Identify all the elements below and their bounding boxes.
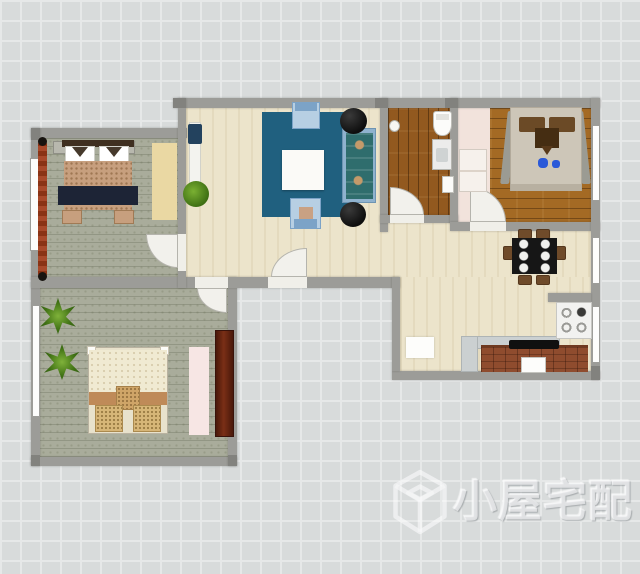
wall-joint <box>173 98 186 108</box>
double-bed-bedroom2[interactable] <box>510 107 582 191</box>
coffee-table[interactable] <box>282 150 324 190</box>
wall-joint <box>228 455 237 466</box>
bedroom1-mat[interactable] <box>152 143 177 220</box>
stove[interactable] <box>556 302 592 339</box>
bed-pillow <box>95 405 123 432</box>
kitchen-counter-side[interactable] <box>461 336 478 372</box>
doorway-vestibule <box>470 222 506 231</box>
window-kitchen-right[interactable] <box>592 306 600 363</box>
bathroom-cabinet[interactable] <box>442 176 454 193</box>
watermark: 小屋宅配 <box>391 460 637 544</box>
plant-pot-bottom[interactable] <box>340 202 366 227</box>
bathroom-vanity[interactable] <box>432 139 452 170</box>
folded-blanket <box>535 128 559 148</box>
ladder-shelf[interactable] <box>38 141 47 277</box>
vestibule-closet[interactable] <box>459 149 487 192</box>
floorplan-canvas: 小屋宅配 <box>0 0 640 574</box>
wall-living-bathroom[interactable] <box>380 98 388 232</box>
window-dining-right[interactable] <box>592 237 600 284</box>
wall-kitchen-bottom[interactable] <box>392 371 600 380</box>
watermark-text: 小屋宅配 <box>453 480 633 524</box>
doorway-bedroom1 <box>178 234 186 271</box>
wall-bedroom3-bottom[interactable] <box>31 457 237 466</box>
tv-unit[interactable] <box>188 124 202 144</box>
bed-blanket <box>58 186 138 205</box>
sofa[interactable] <box>342 128 376 203</box>
kitchen-sink[interactable] <box>521 357 546 373</box>
armchair-bottom[interactable] <box>290 198 321 229</box>
wall-joint <box>445 98 458 108</box>
doorway-bathroom <box>390 215 424 223</box>
dining-chair[interactable] <box>536 275 550 285</box>
plant-pot-top[interactable] <box>340 108 367 134</box>
wall-bedroom1-top[interactable] <box>31 128 187 138</box>
bed-pillow <box>133 405 161 432</box>
wall-kitchen-stub[interactable] <box>548 293 591 302</box>
bed-foot-bench <box>114 210 134 224</box>
window-bedroom2-right[interactable] <box>592 125 600 201</box>
bed-foot-board <box>511 184 581 191</box>
double-bed-bedroom1[interactable] <box>62 140 134 225</box>
wardrobe[interactable] <box>215 330 234 437</box>
doorway-bedroom3 <box>195 277 228 288</box>
double-bed-bedroom3[interactable] <box>88 347 168 434</box>
dining-chair[interactable] <box>556 246 566 260</box>
cooktop[interactable] <box>509 340 559 349</box>
potted-plant-living[interactable] <box>183 181 209 207</box>
wall-joint <box>591 366 600 380</box>
wall-joint <box>31 455 40 466</box>
slipper <box>552 160 560 168</box>
dining-chair[interactable] <box>518 275 532 285</box>
bedroom3-rug[interactable] <box>189 347 209 435</box>
window-bedroom3-left[interactable] <box>32 305 40 417</box>
armchair-top[interactable] <box>292 102 320 129</box>
wall-kitchen-left[interactable] <box>392 277 400 371</box>
kitchen-mat[interactable] <box>406 337 434 358</box>
wall-basin[interactable] <box>389 120 400 132</box>
wall-joint <box>375 98 388 108</box>
doorway-entry <box>268 277 307 288</box>
toilet[interactable] <box>433 111 452 136</box>
watermark-cube-logo <box>391 468 449 536</box>
slipper <box>538 158 548 168</box>
bed-foot-bench <box>62 210 82 224</box>
dining-table[interactable] <box>512 238 557 274</box>
